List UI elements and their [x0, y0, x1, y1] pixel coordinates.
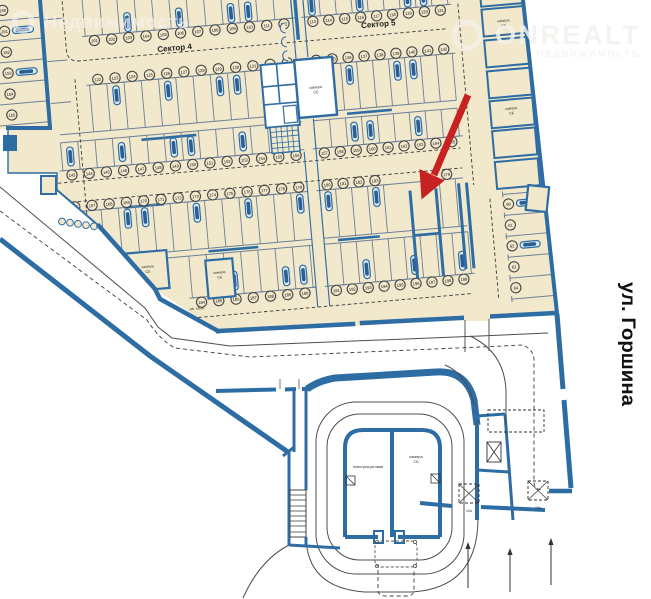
svg-text:СБ: СБ [313, 90, 319, 94]
svg-text:157: 157 [321, 150, 329, 156]
svg-text:129: 129 [215, 66, 223, 72]
svg-text:122: 122 [94, 77, 102, 83]
svg-text:162: 162 [400, 143, 408, 149]
svg-text:127: 127 [180, 69, 188, 75]
svg-text:147: 147 [137, 166, 145, 172]
svg-text:178: 178 [278, 186, 286, 192]
svg-text:131: 131 [249, 63, 257, 69]
svg-text:172: 172 [175, 195, 183, 201]
svg-text:10к: 10к [535, 505, 541, 510]
svg-text:121: 121 [437, 8, 445, 14]
svg-text:145: 145 [103, 169, 111, 175]
svg-text:190: 190 [301, 290, 309, 296]
svg-text:156: 156 [292, 153, 300, 159]
svg-text:151: 151 [1, 29, 9, 35]
svg-text:194: 194 [381, 284, 389, 290]
svg-text:140: 140 [408, 49, 416, 55]
svg-text:141: 141 [424, 48, 432, 54]
svg-text:118: 118 [389, 12, 397, 18]
svg-text:174: 174 [209, 192, 217, 198]
svg-text:188: 188 [267, 293, 275, 299]
svg-text:180: 180 [324, 182, 332, 188]
svg-text:113: 113 [309, 19, 317, 25]
svg-text:175: 175 [226, 191, 234, 197]
svg-text:137: 137 [360, 53, 368, 59]
svg-text:191: 191 [333, 288, 341, 294]
svg-text:170: 170 [140, 198, 148, 204]
svg-text:160: 160 [369, 146, 377, 152]
svg-text:СБ: СБ [413, 459, 419, 464]
svg-text:123: 123 [111, 75, 119, 81]
svg-text:158: 158 [337, 149, 345, 155]
svg-text:155: 155 [8, 112, 16, 118]
svg-text:177: 177 [261, 188, 269, 194]
svg-text:130: 130 [232, 65, 240, 71]
svg-text:151: 151 [206, 160, 214, 166]
svg-text:179: 179 [295, 185, 303, 191]
svg-text:115: 115 [341, 16, 349, 22]
svg-text:146: 146 [120, 168, 128, 174]
svg-text:199: 199 [460, 277, 468, 283]
svg-text:176: 176 [244, 189, 252, 195]
svg-text:142: 142 [440, 46, 448, 52]
svg-text:125: 125 [146, 72, 154, 78]
svg-text:10к: 10к [466, 508, 472, 513]
svg-text:101: 101 [91, 38, 99, 44]
svg-text:193: 193 [365, 285, 373, 291]
svg-text:197: 197 [428, 279, 436, 285]
svg-text:120: 120 [421, 9, 429, 15]
svg-text:114: 114 [325, 17, 333, 23]
svg-text:138: 138 [376, 52, 384, 58]
svg-text:НЕДВИЖИМОСТЬ: НЕДВИЖИМОСТЬ [537, 49, 640, 59]
svg-text:192: 192 [349, 286, 357, 292]
svg-text:161: 161 [384, 145, 392, 151]
svg-text:116: 116 [357, 15, 365, 21]
svg-text:117: 117 [373, 13, 381, 19]
svg-text:167: 167 [88, 203, 96, 209]
svg-text:189: 189 [284, 292, 292, 298]
svg-text:ONREALT: ONREALT [495, 20, 641, 50]
svg-text:119: 119 [405, 10, 413, 16]
svg-text:электрощитовая: электрощитовая [353, 464, 384, 469]
svg-text:150: 150 [189, 162, 197, 168]
svg-text:195: 195 [397, 282, 405, 288]
svg-text:169: 169 [123, 200, 131, 206]
svg-text:153: 153 [5, 70, 13, 76]
svg-text:163: 163 [416, 142, 424, 148]
svg-text:179: 179 [443, 172, 451, 178]
svg-text:108: 108 [211, 27, 219, 33]
svg-text:153: 153 [241, 157, 249, 163]
svg-text:148: 148 [155, 165, 163, 171]
svg-text:155: 155 [275, 154, 283, 160]
svg-text:Недвижимость: Недвижимость [44, 12, 190, 32]
svg-text:109: 109 [229, 26, 237, 32]
svg-text:164: 164 [432, 140, 440, 146]
svg-text:154: 154 [6, 91, 14, 97]
svg-text:181: 181 [339, 181, 347, 187]
svg-text:139: 139 [392, 51, 400, 57]
svg-text:184: 184 [198, 300, 206, 306]
svg-text:159: 159 [353, 147, 361, 153]
svg-text:126: 126 [163, 71, 171, 77]
svg-text:102: 102 [108, 36, 116, 42]
svg-text:196: 196 [412, 281, 420, 287]
svg-text:104: 104 [142, 33, 150, 39]
svg-text:111: 111 [263, 23, 270, 29]
svg-text:124: 124 [129, 74, 137, 80]
svg-text:110: 110 [246, 24, 254, 30]
svg-text:136: 136 [345, 55, 353, 61]
svg-text:171: 171 [157, 197, 165, 203]
svg-text:107: 107 [194, 29, 202, 35]
svg-text:152: 152 [3, 50, 11, 56]
svg-text:154: 154 [258, 156, 266, 162]
svg-text:105: 105 [160, 32, 168, 38]
svg-text:103: 103 [125, 35, 133, 41]
svg-text:183: 183 [371, 178, 379, 184]
svg-text:173: 173 [192, 194, 200, 200]
svg-text:182: 182 [355, 179, 363, 185]
svg-text:152: 152 [224, 159, 232, 165]
svg-text:198: 198 [444, 278, 452, 284]
svg-text:187: 187 [250, 295, 258, 301]
svg-text:ул. Горшина: ул. Горшина [617, 282, 638, 406]
svg-text:144: 144 [86, 171, 94, 177]
svg-text:149: 149 [172, 163, 180, 169]
svg-text:128: 128 [198, 68, 206, 74]
svg-text:168: 168 [106, 201, 114, 207]
svg-text:143: 143 [68, 172, 76, 178]
